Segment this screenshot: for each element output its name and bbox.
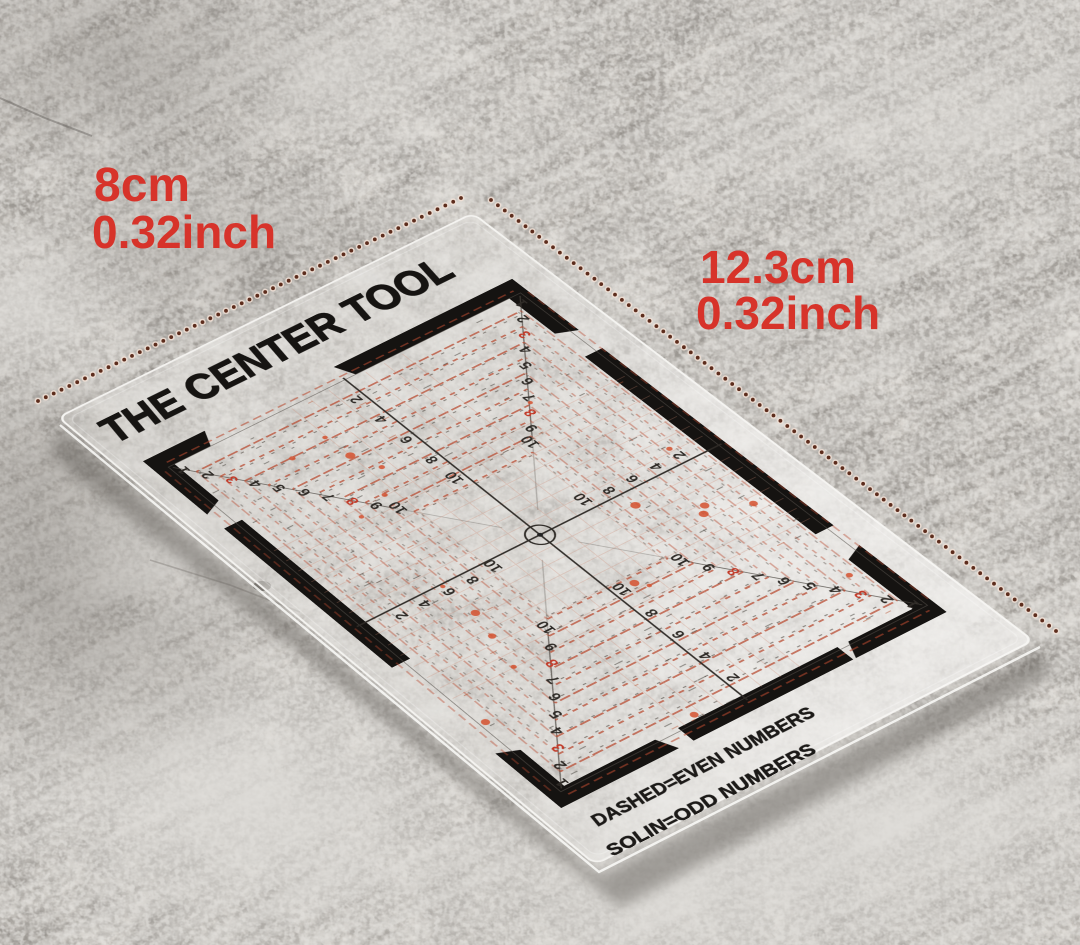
- svg-text:12.3cm: 12.3cm: [700, 241, 856, 293]
- svg-text:0.32inch: 0.32inch: [696, 287, 880, 339]
- svg-text:8cm: 8cm: [94, 159, 190, 212]
- svg-text:0.32inch: 0.32inch: [92, 206, 276, 258]
